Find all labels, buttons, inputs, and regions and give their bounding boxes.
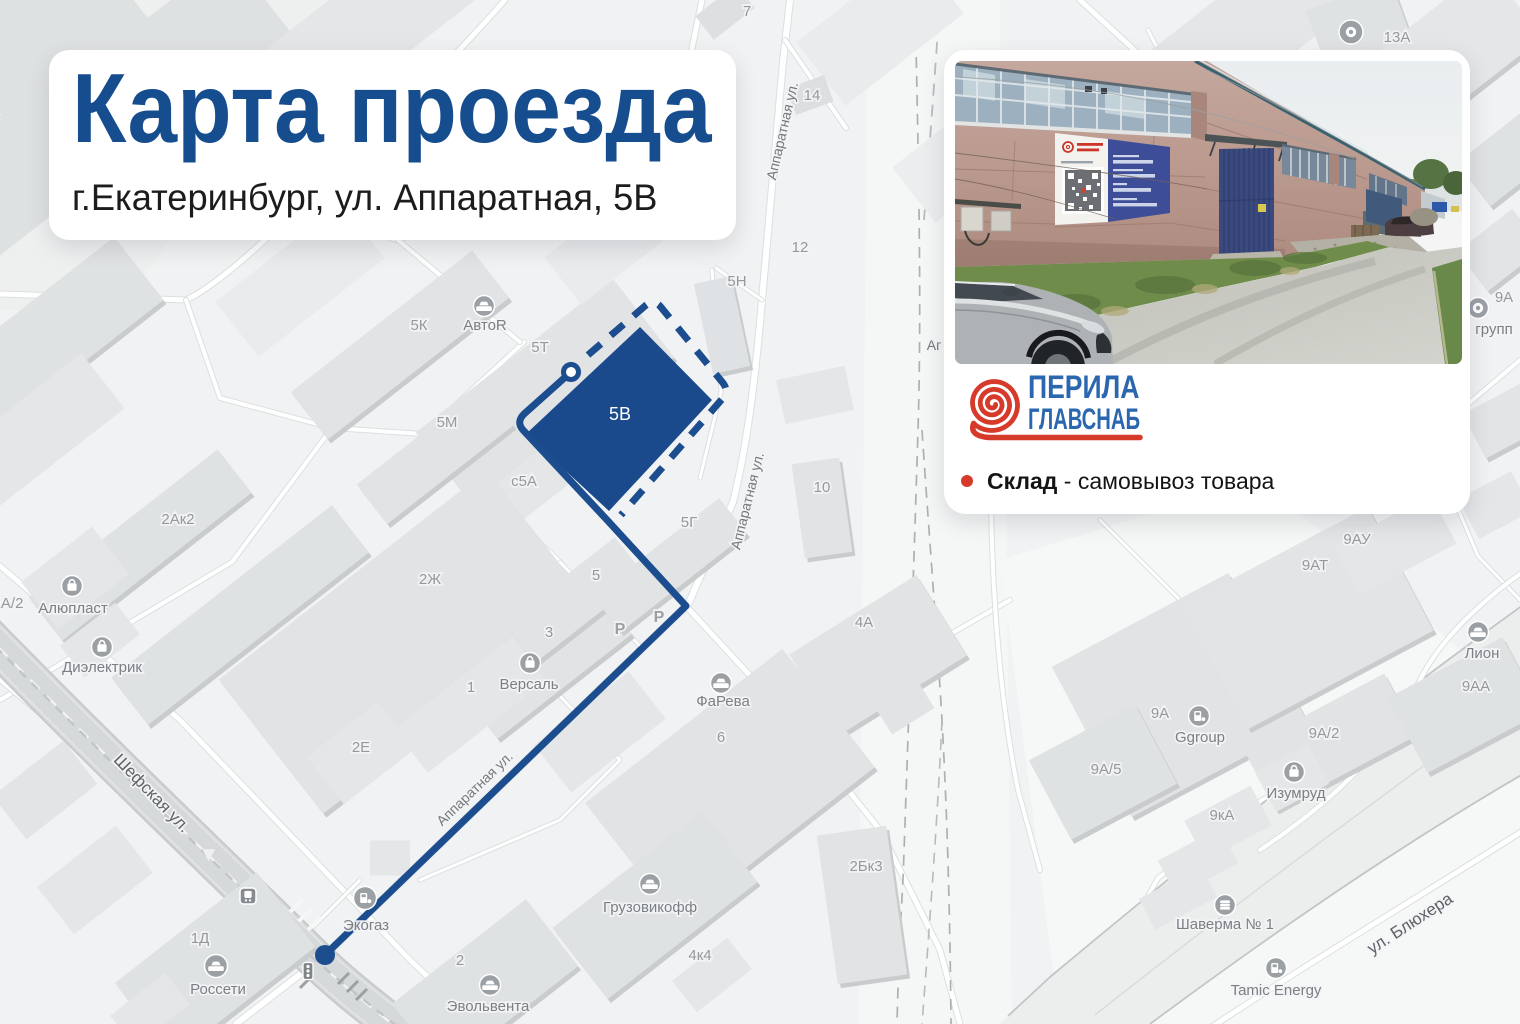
- svg-text:5К: 5К: [410, 317, 427, 334]
- svg-text:Шаверма № 1: Шаверма № 1: [1176, 916, 1274, 933]
- svg-text:1Д: 1Д: [191, 930, 210, 947]
- svg-text:9А: 9А: [1495, 289, 1513, 306]
- svg-text:Эвольвента: Эвольвента: [447, 998, 530, 1015]
- svg-text:2: 2: [456, 952, 464, 969]
- svg-text:Tamic Energy: Tamic Energy: [1231, 982, 1322, 999]
- svg-text:P: P: [654, 609, 665, 626]
- svg-text:9А/5: 9А/5: [1091, 761, 1122, 778]
- svg-text:P: P: [615, 621, 626, 638]
- svg-text:9АА: 9АА: [1462, 678, 1490, 695]
- svg-text:Грузовикофф: Грузовикофф: [603, 899, 697, 916]
- svg-text:5Н: 5Н: [727, 273, 746, 290]
- svg-text:Ggroup: Ggroup: [1175, 729, 1225, 746]
- svg-text:1: 1: [467, 679, 475, 696]
- svg-text:2Ж: 2Ж: [419, 571, 441, 588]
- svg-text:3: 3: [545, 624, 553, 641]
- svg-text:5В: 5В: [609, 404, 631, 424]
- svg-text:Лион: Лион: [1465, 645, 1500, 662]
- svg-text:4к4: 4к4: [688, 947, 711, 964]
- svg-text:Алюпласт: Алюпласт: [38, 600, 108, 617]
- svg-text:9АУ: 9АУ: [1343, 531, 1371, 548]
- svg-text:Экогаз: Экогаз: [343, 917, 389, 934]
- svg-text:5: 5: [592, 567, 600, 584]
- svg-text:2Бк3: 2Бк3: [849, 858, 882, 875]
- svg-text:2Ак2: 2Ак2: [161, 511, 194, 528]
- svg-text:5М: 5М: [437, 414, 458, 431]
- svg-text:7: 7: [743, 3, 751, 20]
- svg-text:Аг: Аг: [927, 337, 941, 353]
- svg-text:ФаРева: ФаРева: [696, 693, 750, 710]
- svg-text:Версаль: Версаль: [499, 676, 558, 693]
- svg-text:5Т: 5Т: [531, 339, 549, 356]
- svg-text:Изумруд: Изумруд: [1266, 785, 1325, 802]
- svg-text:6: 6: [717, 729, 725, 746]
- svg-text:4А: 4А: [855, 614, 873, 631]
- svg-text:9АТ: 9АТ: [1302, 557, 1328, 574]
- svg-text:АвтоR: АвтоR: [463, 317, 507, 334]
- svg-text:9А/2: 9А/2: [1309, 725, 1340, 742]
- svg-text:14: 14: [804, 87, 821, 104]
- svg-text:9А: 9А: [1151, 705, 1169, 722]
- svg-text:2А/2: 2А/2: [0, 595, 23, 612]
- svg-text:с5А: с5А: [511, 473, 537, 490]
- svg-text:5Г: 5Г: [681, 514, 697, 531]
- svg-text:10: 10: [814, 479, 831, 496]
- svg-text:9кА: 9кА: [1210, 807, 1235, 824]
- svg-text:Диэлектрик: Диэлектрик: [62, 659, 142, 676]
- svg-text:Россети: Россети: [190, 981, 246, 998]
- svg-text:13А: 13А: [1384, 29, 1411, 46]
- svg-text:2Е: 2Е: [352, 739, 370, 756]
- svg-text:групп: групп: [1475, 321, 1512, 338]
- svg-text:12: 12: [792, 239, 809, 256]
